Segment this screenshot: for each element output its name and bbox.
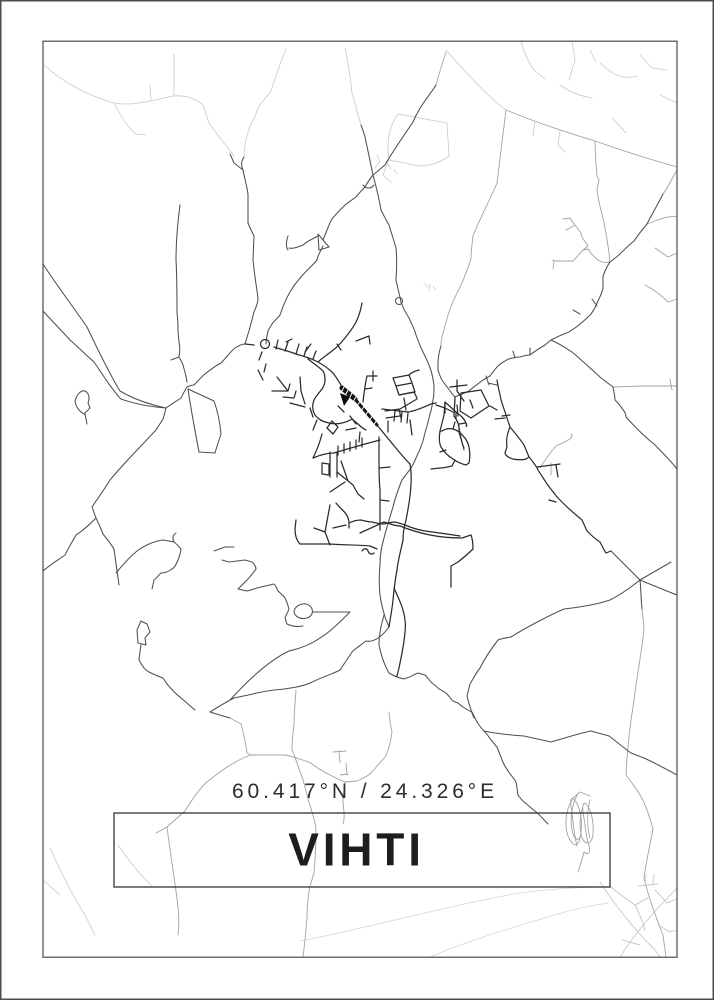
- svg-text:60.417°N / 24.326°E: 60.417°N / 24.326°E: [232, 780, 498, 803]
- svg-text:VIHTI: VIHTI: [288, 824, 425, 876]
